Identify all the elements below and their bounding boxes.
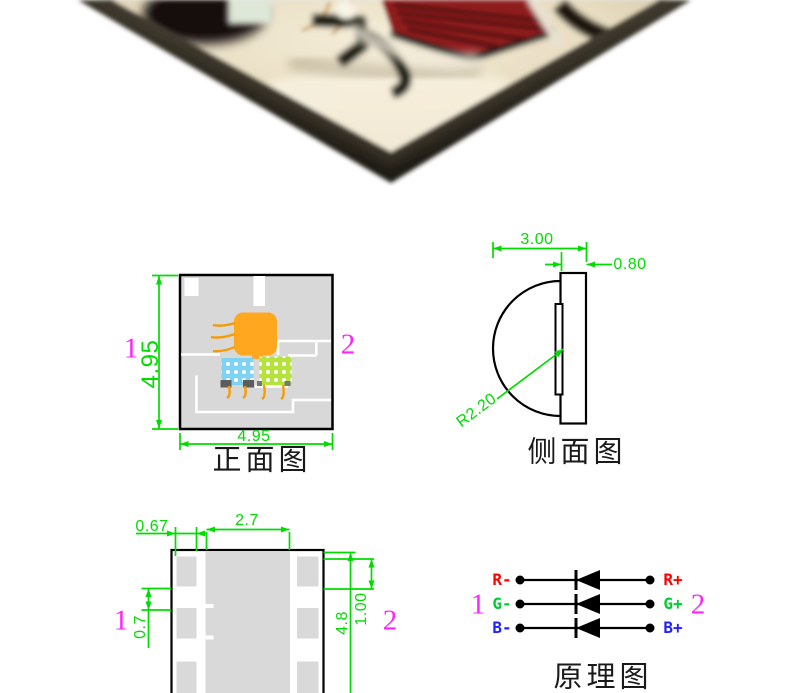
schematic-label-b-pos: B+ <box>663 620 682 636</box>
schematic-pin1-number: 1 <box>471 591 486 620</box>
back-dim-pad-height: 1.00 <box>354 592 370 625</box>
back-dim-total-height: 4.8 <box>335 611 351 635</box>
diode-row-red <box>516 570 655 590</box>
front-corner-notch <box>185 278 199 296</box>
side-substrate <box>556 304 563 395</box>
side-body <box>561 273 587 424</box>
back-dim-pad-gap: 0.7 <box>133 615 149 639</box>
product-detail-page: 4.95 4.95 1 2 正面图 3.00 0.80 R2.20 侧面图 0.… <box>0 0 790 693</box>
diode-icon <box>576 618 600 638</box>
back-pin2-number: 2 <box>383 607 398 636</box>
technical-drawings <box>0 0 790 693</box>
back-view-drawing <box>136 527 375 693</box>
side-view-caption: 侧面图 <box>527 439 626 468</box>
diode-row-blue <box>516 618 655 638</box>
schematic-drawing <box>516 570 655 638</box>
schematic-pin2-number: 2 <box>691 591 706 620</box>
diode-icon <box>576 570 600 590</box>
schematic-label-r-pos: R+ <box>663 572 682 588</box>
front-dim-width: 4.95 <box>237 429 270 445</box>
schematic-caption: 原理图 <box>553 664 652 693</box>
back-center-pad <box>206 551 291 693</box>
front-view-drawing <box>152 275 333 450</box>
side-dim-depth: 3.00 <box>520 232 553 248</box>
front-dim-height: 4.95 <box>139 340 163 389</box>
front-red-die <box>234 313 277 356</box>
schematic-label-g-pos: G+ <box>663 596 682 612</box>
schematic-label-b-neg: B- <box>492 620 511 636</box>
schematic-label-r-neg: R- <box>492 572 511 588</box>
diode-row-green <box>516 594 655 614</box>
front-pin2-number: 2 <box>341 331 356 360</box>
back-pin1-number: 1 <box>114 607 129 636</box>
front-top-slot <box>254 276 266 306</box>
back-dim-pad-width: 0.67 <box>135 519 168 535</box>
diode-icon <box>576 594 600 614</box>
schematic-label-g-neg: G- <box>492 596 511 612</box>
front-view-caption: 正面图 <box>212 447 311 476</box>
back-dim-center-width: 2.7 <box>235 513 259 529</box>
front-pin1-number: 1 <box>124 335 139 364</box>
side-dim-body-width: 0.80 <box>613 257 646 273</box>
